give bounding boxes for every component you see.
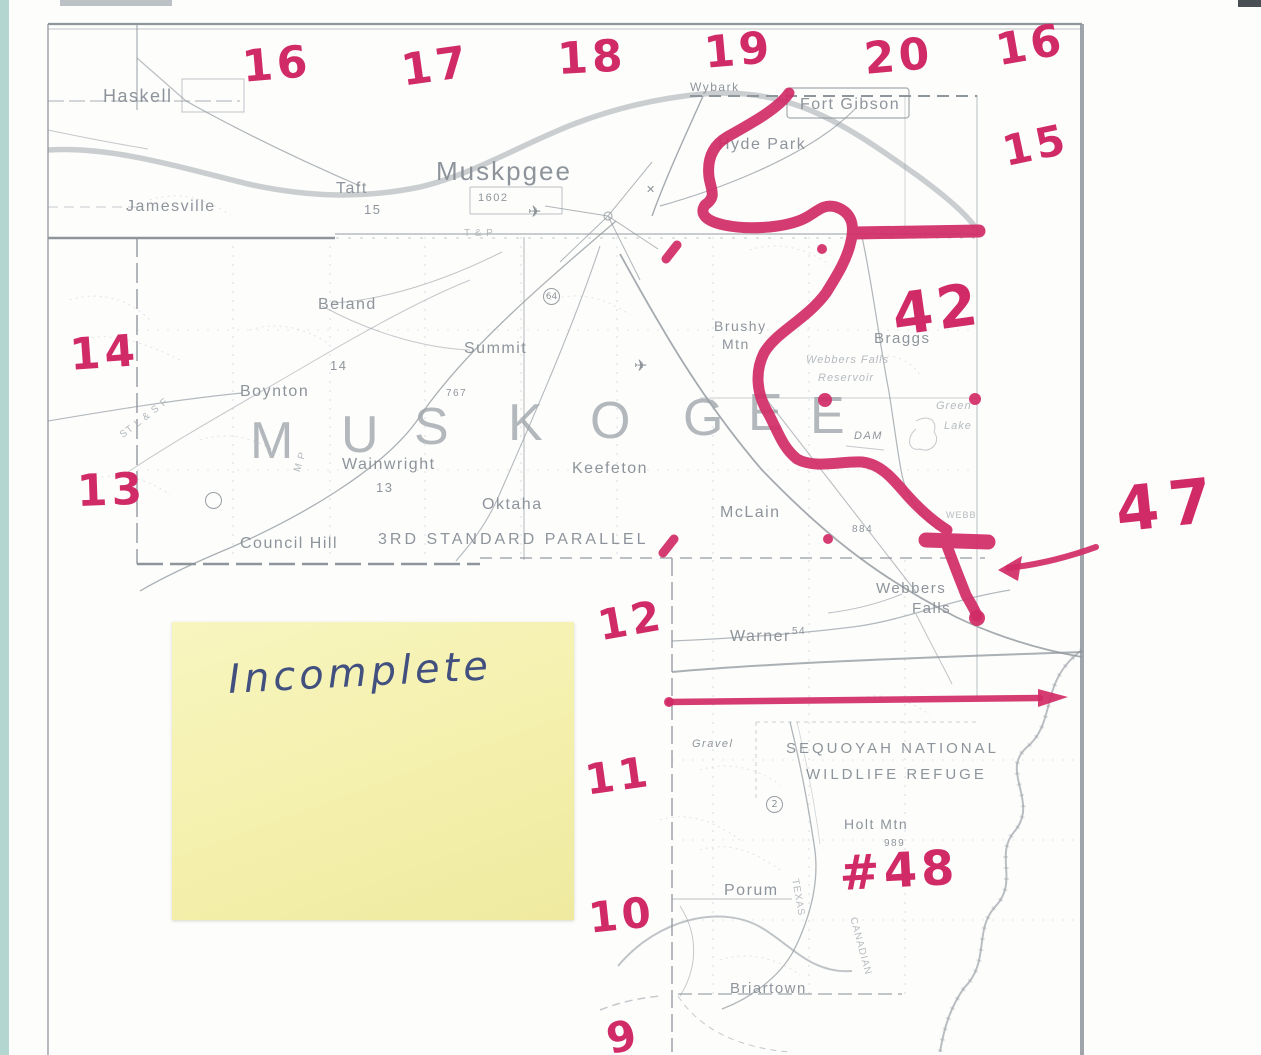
red-annotation-12: 12 (594, 590, 668, 650)
scanned-map-page: MUSKOGEE T & PM PST L & S FWebbers Falls… (0, 0, 1261, 1055)
red-annotation-15: 15 (998, 114, 1073, 176)
red-annotation-18: 18 (556, 30, 628, 85)
sticky-note: Incomplete (172, 622, 574, 920)
red-annotation-14: 14 (68, 325, 141, 381)
sticky-note-text: Incomplete (227, 643, 493, 703)
red-annotation-20: 20 (862, 28, 935, 85)
red-annotation-17: 17 (398, 36, 474, 96)
red-annotation-10: 10 (586, 887, 657, 943)
red-annotation-13: 13 (76, 464, 147, 517)
scan-corner-mark (1238, 0, 1261, 7)
red-annotation-47: 47 (1112, 463, 1225, 547)
scan-smudge (60, 0, 172, 6)
red-annotation-16: 16 (240, 36, 313, 93)
red-annotation-48: #48 (838, 840, 960, 902)
red-annotation-19: 19 (702, 22, 775, 79)
scanner-edge-artifact (0, 0, 9, 1055)
red-annotation-42: 42 (888, 270, 985, 350)
red-annotation-11: 11 (582, 747, 655, 805)
red-annotation-9: 9 (602, 1009, 645, 1055)
red-annotation-16: 16 (992, 14, 1069, 76)
